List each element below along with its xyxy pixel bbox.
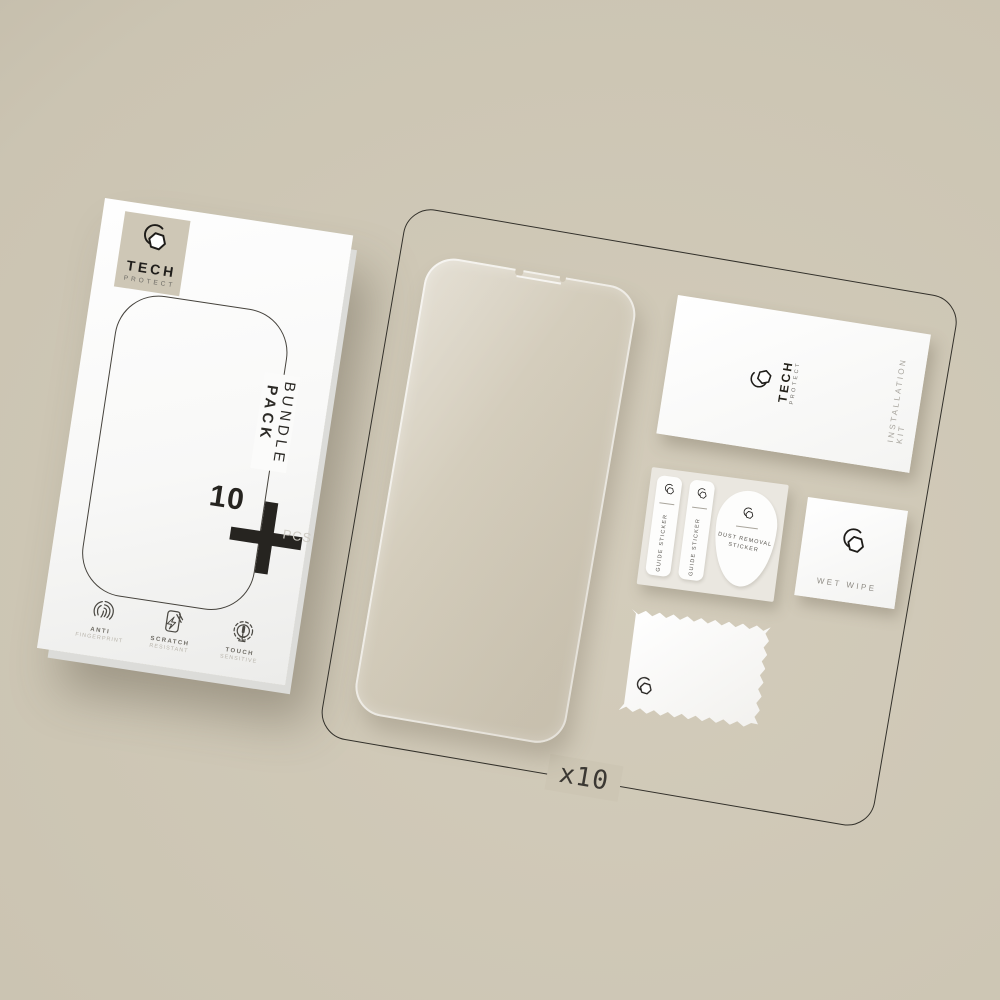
brand-hexagon-logo-icon xyxy=(836,525,868,562)
feature-touch-sensitive: TOUCH SENSITIVE xyxy=(206,614,276,667)
wet-wipe-packet: WET WIPE xyxy=(794,497,908,609)
feature-anti-fingerprint: ANTI FINGERPRINT xyxy=(67,593,137,646)
dust-removal-sticker: DUST REMOVAL STICKER xyxy=(708,487,781,590)
divider xyxy=(735,525,757,529)
wet-wipe-label: WET WIPE xyxy=(796,573,897,596)
quantity-block: 10 PCS xyxy=(196,475,331,602)
guide-sticker-label: GUIDE STICKER xyxy=(655,511,669,572)
brand-hexagon-logo-icon xyxy=(694,486,708,505)
installation-kit-label: INSTALLATION KIT xyxy=(886,357,917,444)
brand-hexagon-logo-icon xyxy=(740,506,755,526)
fingerprint-icon xyxy=(88,596,119,627)
retail-box: TECH PROTECT BUNDLE PACK 10 PCS ANTI FIN… xyxy=(37,198,353,685)
guide-sticker: GUIDE STICKER xyxy=(678,479,716,581)
kit-brand-logo: TECH PROTECT xyxy=(746,354,802,407)
brand-hexagon-logo-icon xyxy=(661,482,675,501)
brand-hexagon-logo-icon xyxy=(137,220,172,259)
touch-sensitive-icon xyxy=(227,617,258,648)
brand-hexagon-logo-icon xyxy=(747,365,779,393)
divider xyxy=(659,502,674,505)
sticker-sheet: GUIDE STICKER GUIDE STICKER DUST REMOVAL… xyxy=(637,467,789,602)
feature-scratch-resistant: SCRATCH RESISTANT xyxy=(137,603,207,656)
guide-sticker-label: GUIDE STICKER xyxy=(688,515,702,576)
brand-logo-block: TECH PROTECT xyxy=(114,211,191,296)
count-label: x10 xyxy=(544,754,623,802)
divider xyxy=(692,507,707,510)
brand-hexagon-logo-icon xyxy=(632,675,655,702)
product-photo-scene: TECH PROTECT BUNDLE PACK 10 PCS ANTI FIN… xyxy=(0,0,1000,1000)
dust-removal-label: DUST REMOVAL STICKER xyxy=(716,530,773,557)
guide-sticker: GUIDE STICKER xyxy=(645,475,683,577)
scratch-resistant-icon xyxy=(158,606,189,637)
